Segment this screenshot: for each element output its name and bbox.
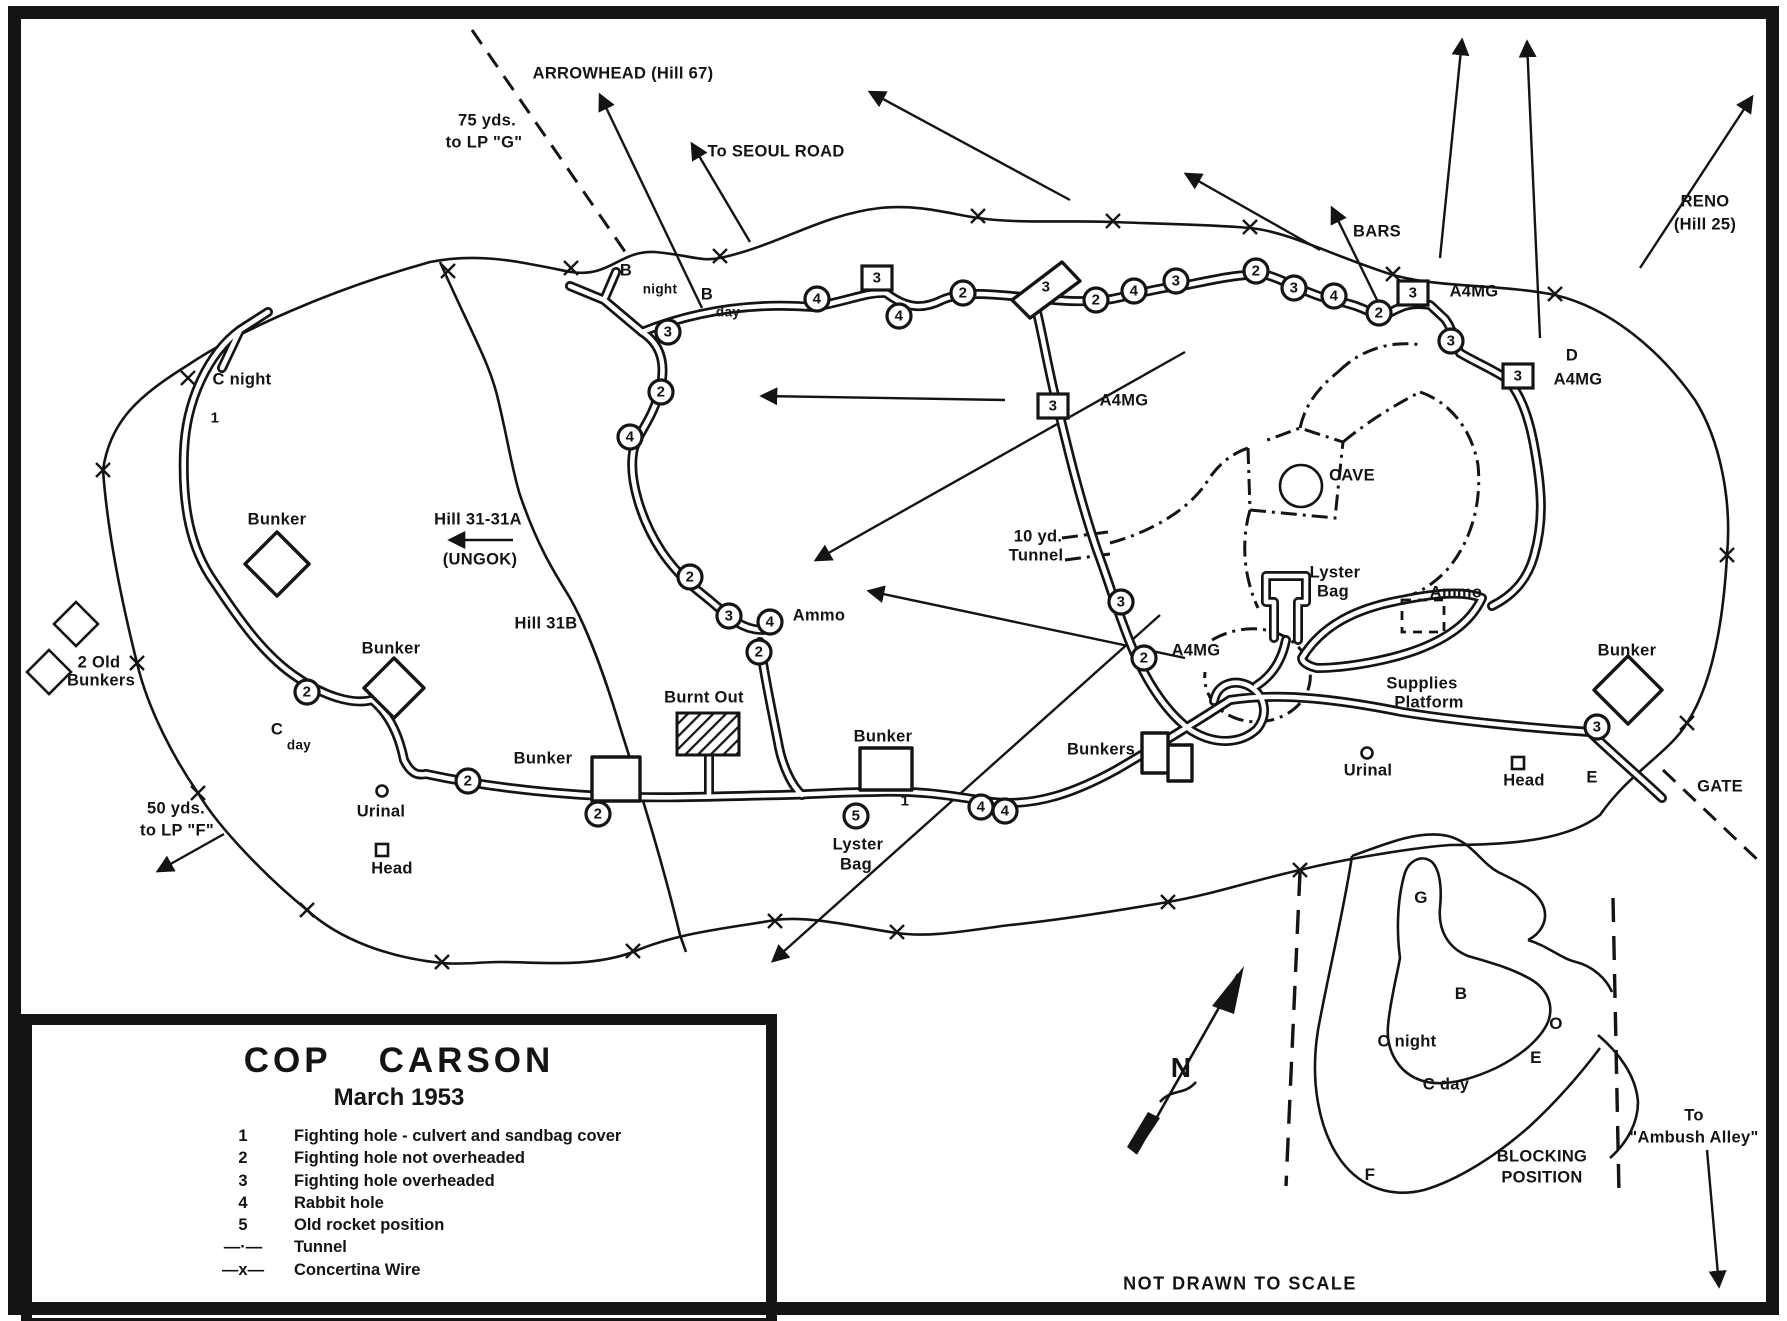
map-label: Bunker xyxy=(1598,642,1657,661)
map-label: 2 xyxy=(594,806,603,823)
map-label: Hill 31-31A xyxy=(434,511,522,530)
map-label: Lyster xyxy=(1310,564,1361,583)
map-label: N xyxy=(1171,1052,1192,1084)
map-label: GATE xyxy=(1697,778,1743,797)
map-label: Ammo xyxy=(793,607,846,626)
map-label: 3 xyxy=(1117,594,1126,611)
legend-items: 1Fighting hole - culvert and sandbag cov… xyxy=(32,1127,766,1283)
map-label: B xyxy=(1455,984,1468,1004)
map-label: 3 xyxy=(1447,333,1456,350)
map-label: (Hill 25) xyxy=(1674,216,1736,235)
map-label: 3 xyxy=(1409,285,1418,302)
map-label: 2 xyxy=(1092,292,1101,309)
map-label: 1 xyxy=(211,410,220,427)
map-label: 1 xyxy=(901,793,910,810)
map-label: Head xyxy=(371,860,413,879)
map-label: day xyxy=(287,738,311,753)
map-page: ARROWHEAD (Hill 67)75 yds.to LP "G"To SE… xyxy=(0,0,1787,1321)
map-label: G xyxy=(1414,888,1428,908)
map-label: RENO xyxy=(1681,193,1730,212)
legend-row: 1Fighting hole - culvert and sandbag cov… xyxy=(32,1127,766,1149)
map-label: 4 xyxy=(895,308,904,325)
map-label: (UNGOK) xyxy=(443,551,518,570)
wire-line-symbol: —x— xyxy=(208,1261,278,1280)
map-label: Bunker xyxy=(514,750,573,769)
map-label: 2 xyxy=(1375,305,1384,322)
legend-row: —x—Concertina Wire xyxy=(32,1261,766,1283)
map-label: 5 xyxy=(852,808,861,825)
map-label: A4MG xyxy=(1450,283,1499,302)
map-label: BLOCKING xyxy=(1497,1148,1587,1167)
legend-box: COP CARSON March 1953 1Fighting hole - c… xyxy=(21,1014,777,1321)
tunnel-line-symbol: —·— xyxy=(208,1238,278,1257)
map-label: Bunkers xyxy=(67,672,135,691)
map-label: 10 yd. xyxy=(1014,528,1063,547)
map-label: night xyxy=(643,282,678,297)
map-label: Bag xyxy=(1317,583,1349,602)
map-label: 4 xyxy=(1330,288,1339,305)
map-label: C night xyxy=(213,371,272,390)
legend-row: 2Fighting hole not overheaded xyxy=(32,1149,766,1171)
map-label: To SEOUL ROAD xyxy=(707,143,844,162)
map-label: To xyxy=(1684,1107,1704,1126)
map-label: day xyxy=(716,305,740,320)
map-label: O xyxy=(1549,1014,1563,1034)
map-label: Bag xyxy=(840,856,872,875)
map-label: 4 xyxy=(1130,283,1139,300)
map-label: 2 xyxy=(755,644,764,661)
map-label: 3 xyxy=(1593,719,1602,736)
map-label: 2 xyxy=(1252,263,1261,280)
map-label: Urinal xyxy=(357,803,406,822)
map-label: D xyxy=(1566,347,1578,366)
map-label: A4MG xyxy=(1554,371,1603,390)
map-label: E xyxy=(1586,769,1597,788)
map-date: March 1953 xyxy=(32,1084,766,1112)
map-label: B xyxy=(701,286,713,305)
map-label: 2 xyxy=(1140,650,1149,667)
map-label: 2 xyxy=(464,773,473,790)
map-label: C xyxy=(271,721,283,740)
map-label: Lyster xyxy=(833,836,884,855)
map-label: Supplies xyxy=(1386,675,1457,694)
legend-row: 5Old rocket position xyxy=(32,1216,766,1238)
map-label: POSITION xyxy=(1501,1169,1582,1188)
map-label: Platform xyxy=(1394,694,1463,713)
map-label: Bunker xyxy=(248,511,307,530)
map-label: 2 xyxy=(303,684,312,701)
map-label: ARROWHEAD (Hill 67) xyxy=(533,65,714,84)
map-label: 2 xyxy=(959,285,968,302)
map-label: BARS xyxy=(1353,223,1401,242)
legend-row: 3Fighting hole overheaded xyxy=(32,1172,766,1194)
map-label: 4 xyxy=(977,799,986,816)
map-label: 4 xyxy=(1001,803,1010,820)
map-label: 4 xyxy=(813,291,822,308)
map-label: Bunker xyxy=(362,640,421,659)
map-label: 4 xyxy=(766,614,775,631)
map-label: A4MG xyxy=(1100,392,1149,411)
map-label: CAVE xyxy=(1329,467,1375,486)
map-label: Bunkers xyxy=(1067,741,1135,760)
map-label: C night xyxy=(1378,1033,1437,1052)
map-label: to LP "G" xyxy=(446,134,523,153)
map-label: 4 xyxy=(626,429,635,446)
map-label: 3 xyxy=(1042,279,1051,296)
map-label: 2 xyxy=(657,384,666,401)
map-label: 2 xyxy=(686,569,695,586)
map-label: 2 Old xyxy=(78,654,121,673)
map-label: F xyxy=(1365,1165,1376,1185)
map-label: 3 xyxy=(1049,398,1058,415)
map-label: 3 xyxy=(1514,368,1523,385)
map-label: Hill 31B xyxy=(515,615,578,634)
map-label: A4MG xyxy=(1172,642,1221,661)
map-label: to LP "F" xyxy=(140,822,214,841)
map-label: C day xyxy=(1423,1076,1469,1095)
map-label: E xyxy=(1530,1048,1542,1068)
map-label: "Ambush Alley" xyxy=(1629,1129,1758,1148)
map-label: 50 yds. xyxy=(147,800,205,819)
legend-row: —·—Tunnel xyxy=(32,1238,766,1260)
map-label: 3 xyxy=(873,270,882,287)
map-label: 75 yds. xyxy=(458,112,516,131)
map-label: Burnt Out xyxy=(664,689,744,708)
map-label: B xyxy=(620,262,632,281)
legend-row: 4Rabbit hole xyxy=(32,1194,766,1216)
map-label: Tunnel xyxy=(1009,547,1064,566)
map-label: Urinal xyxy=(1344,762,1393,781)
map-label: 3 xyxy=(664,324,673,341)
map-label: 3 xyxy=(1172,273,1181,290)
scale-note: NOT DRAWN TO SCALE xyxy=(1123,1274,1357,1295)
map-label: Ammo xyxy=(1430,584,1483,603)
map-label: Bunker xyxy=(854,728,913,747)
map-label: 3 xyxy=(1290,280,1299,297)
map-title: COP CARSON xyxy=(32,1041,766,1081)
map-label: 3 xyxy=(725,608,734,625)
map-label: Head xyxy=(1503,772,1545,791)
